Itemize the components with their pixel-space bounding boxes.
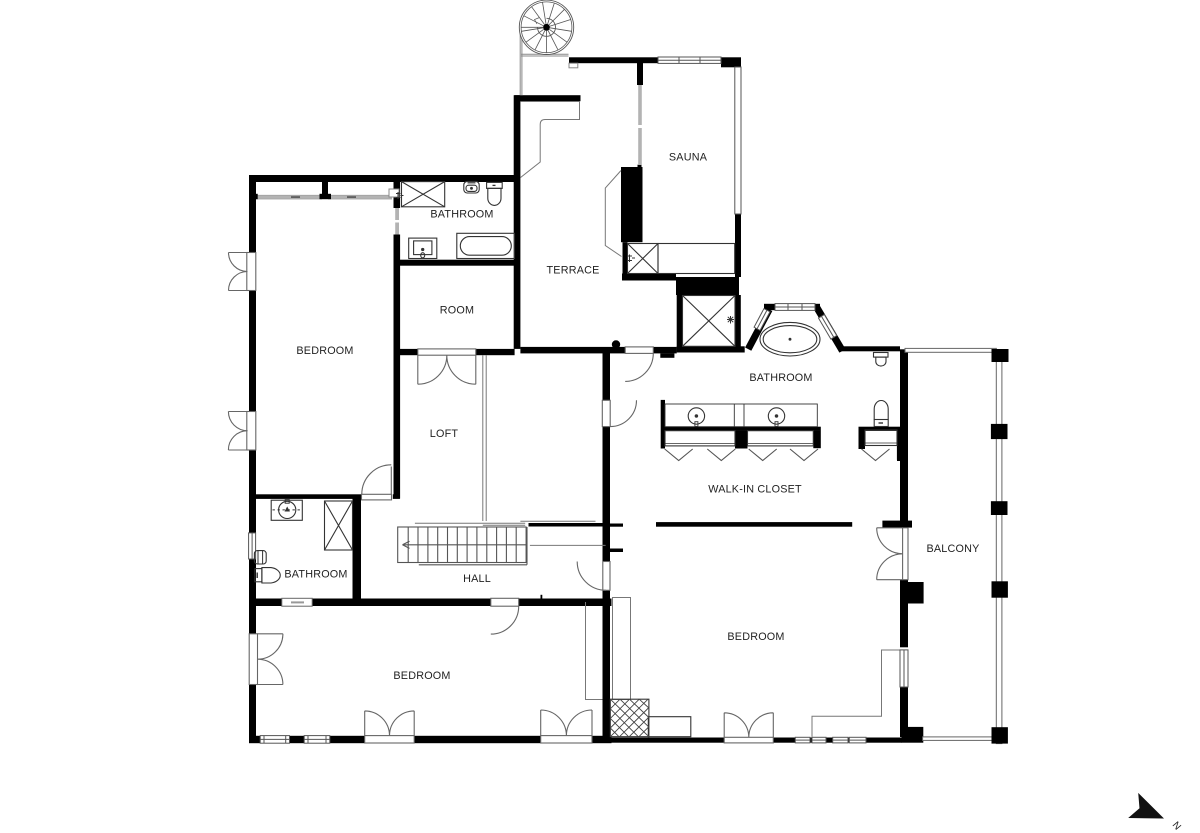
- svg-text:HALL: HALL: [463, 573, 491, 585]
- svg-text:WALK-IN CLOSET: WALK-IN CLOSET: [708, 484, 802, 496]
- svg-text:BATHROOM: BATHROOM: [749, 372, 812, 384]
- svg-text:TERRACE: TERRACE: [547, 265, 600, 277]
- svg-text:BATHROOM: BATHROOM: [430, 209, 493, 221]
- svg-text:BEDROOM: BEDROOM: [393, 670, 450, 682]
- svg-text:BEDROOM: BEDROOM: [727, 631, 784, 643]
- svg-text:BEDROOM: BEDROOM: [296, 345, 353, 357]
- svg-text:BATHROOM: BATHROOM: [284, 569, 347, 581]
- svg-text:SAUNA: SAUNA: [669, 152, 708, 164]
- svg-text:ROOM: ROOM: [440, 305, 474, 317]
- svg-text:BALCONY: BALCONY: [926, 543, 979, 555]
- svg-text:LOFT: LOFT: [430, 428, 459, 440]
